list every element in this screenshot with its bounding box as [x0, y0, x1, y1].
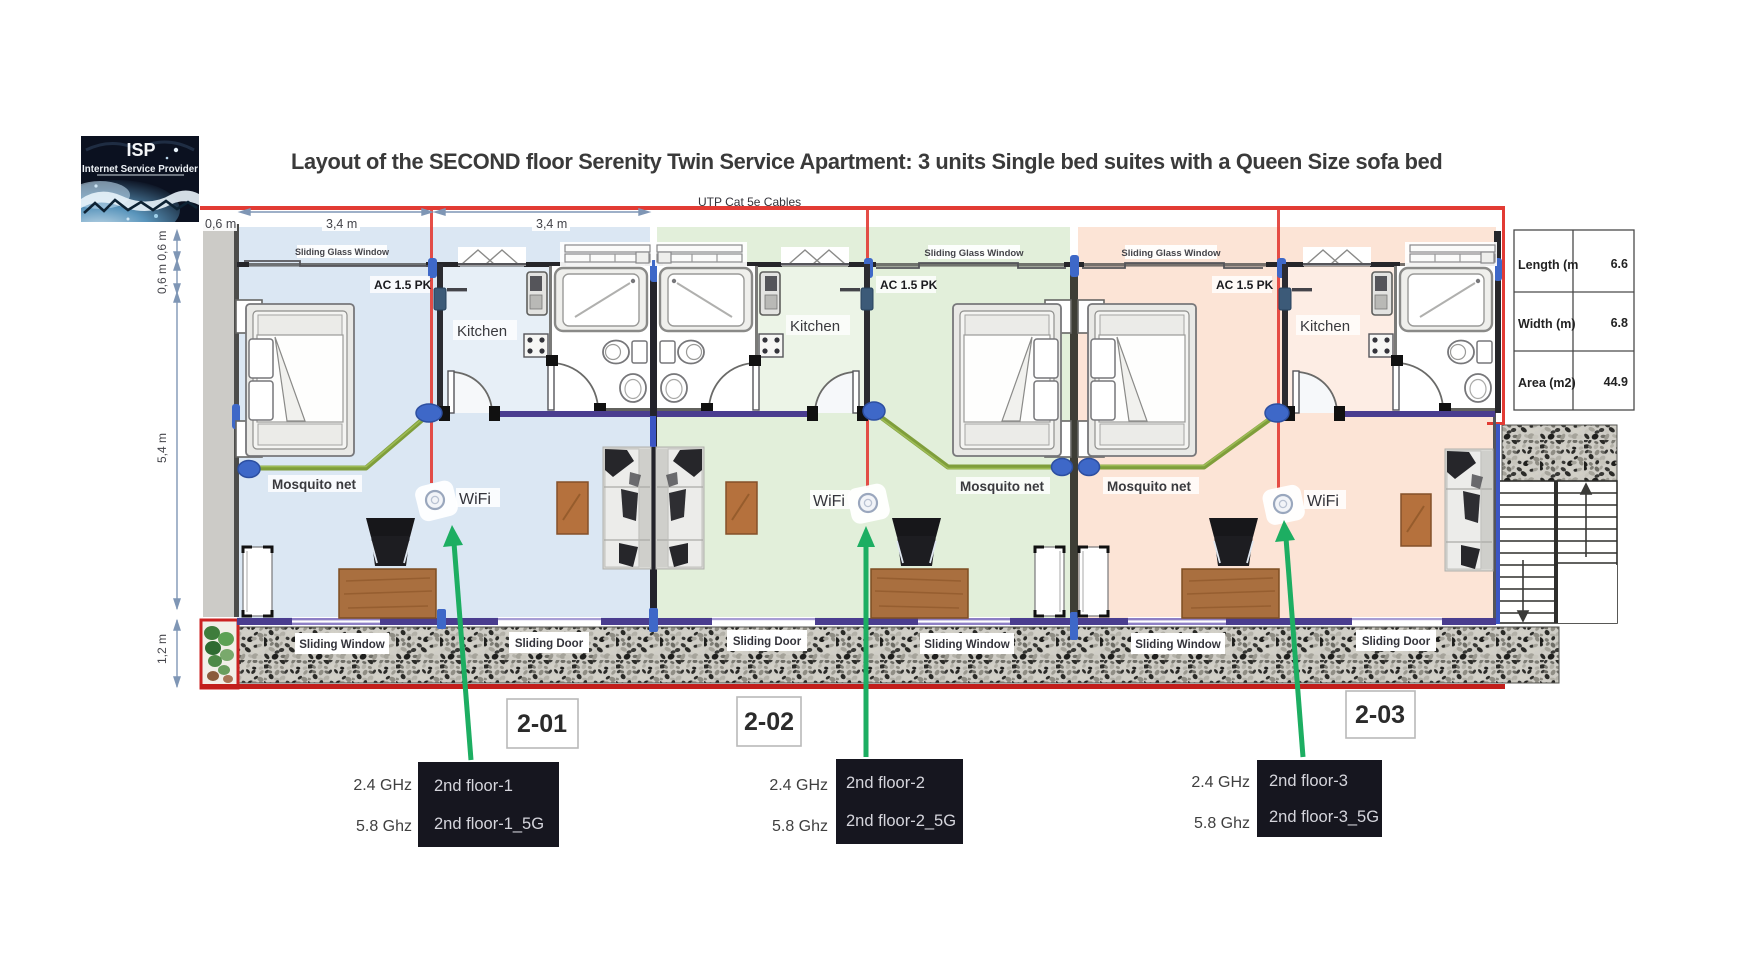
- svg-text:3,4 m: 3,4 m: [536, 217, 567, 231]
- svg-text:ISP: ISP: [126, 140, 155, 160]
- svg-text:2.4 GHz: 2.4 GHz: [769, 777, 828, 794]
- svg-text:5,4 m: 5,4 m: [155, 433, 169, 463]
- svg-text:5.8 Ghz: 5.8 Ghz: [772, 818, 828, 835]
- svg-text:2-03: 2-03: [1355, 701, 1405, 729]
- svg-text:Mosquito net: Mosquito net: [1107, 479, 1191, 494]
- svg-text:AC 1.5 PK: AC 1.5 PK: [374, 278, 432, 292]
- svg-text:2-02: 2-02: [744, 708, 794, 736]
- svg-text:2nd floor-2: 2nd floor-2: [846, 774, 925, 792]
- svg-text:2-01: 2-01: [517, 710, 567, 738]
- svg-text:Width (m): Width (m): [1518, 317, 1576, 331]
- svg-text:Internet Service Provider: Internet Service Provider: [82, 164, 198, 175]
- svg-text:AC 1.5 PK: AC 1.5 PK: [1216, 278, 1274, 292]
- svg-text:UTP Cat 5e Cables: UTP Cat 5e Cables: [698, 195, 801, 209]
- svg-text:Layout of the SECOND floor Ser: Layout of the SECOND floor Serenity Twin…: [291, 149, 1442, 174]
- svg-text:AC 1.5 PK: AC 1.5 PK: [880, 278, 938, 292]
- svg-text:Sliding Glass Window: Sliding Glass Window: [1121, 248, 1221, 259]
- svg-text:0,6 m 0,6 m: 0,6 m 0,6 m: [155, 231, 169, 294]
- svg-text:2.4 GHz: 2.4 GHz: [1191, 774, 1250, 791]
- svg-text:Kitchen: Kitchen: [1300, 318, 1350, 335]
- svg-text:6.8: 6.8: [1611, 316, 1628, 330]
- svg-text:Sliding Door: Sliding Door: [515, 638, 584, 650]
- svg-text:5.8 Ghz: 5.8 Ghz: [1194, 815, 1250, 832]
- svg-text:WiFi: WiFi: [1307, 493, 1339, 510]
- svg-text:5.8 Ghz: 5.8 Ghz: [356, 818, 412, 835]
- svg-text:Kitchen: Kitchen: [790, 318, 840, 335]
- svg-text:Sliding Glass Window: Sliding Glass Window: [924, 248, 1024, 259]
- svg-text:Sliding Window: Sliding Window: [1135, 639, 1221, 651]
- svg-text:Area (m2): Area (m2): [1518, 376, 1576, 390]
- svg-text:Sliding Door: Sliding Door: [733, 636, 802, 648]
- svg-text:2nd floor-1: 2nd floor-1: [434, 777, 513, 795]
- svg-text:0,6 m: 0,6 m: [205, 217, 236, 231]
- svg-text:2nd floor-3_5G: 2nd floor-3_5G: [1269, 808, 1379, 826]
- svg-text:6.6: 6.6: [1611, 257, 1628, 271]
- svg-text:WiFi: WiFi: [813, 493, 845, 510]
- svg-text:44.9: 44.9: [1604, 375, 1628, 389]
- svg-text:WiFi: WiFi: [459, 491, 491, 508]
- svg-text:1,2 m: 1,2 m: [155, 634, 169, 664]
- svg-text:Sliding Window: Sliding Window: [924, 639, 1010, 651]
- svg-text:Kitchen: Kitchen: [457, 323, 507, 340]
- svg-text:Length (m: Length (m: [1518, 258, 1578, 272]
- svg-text:Sliding Door: Sliding Door: [1362, 636, 1431, 648]
- svg-text:Mosquito net: Mosquito net: [272, 477, 356, 492]
- svg-text:Sliding Glass Window: Sliding Glass Window: [295, 247, 390, 257]
- svg-text:2nd floor-2_5G: 2nd floor-2_5G: [846, 812, 956, 830]
- svg-text:3,4 m: 3,4 m: [326, 217, 357, 231]
- svg-text:2nd floor-1_5G: 2nd floor-1_5G: [434, 815, 544, 833]
- svg-text:2nd floor-3: 2nd floor-3: [1269, 772, 1348, 790]
- svg-text:Mosquito net: Mosquito net: [960, 479, 1044, 494]
- svg-text:2.4 GHz: 2.4 GHz: [353, 777, 412, 794]
- svg-text:Sliding Window: Sliding Window: [299, 639, 385, 651]
